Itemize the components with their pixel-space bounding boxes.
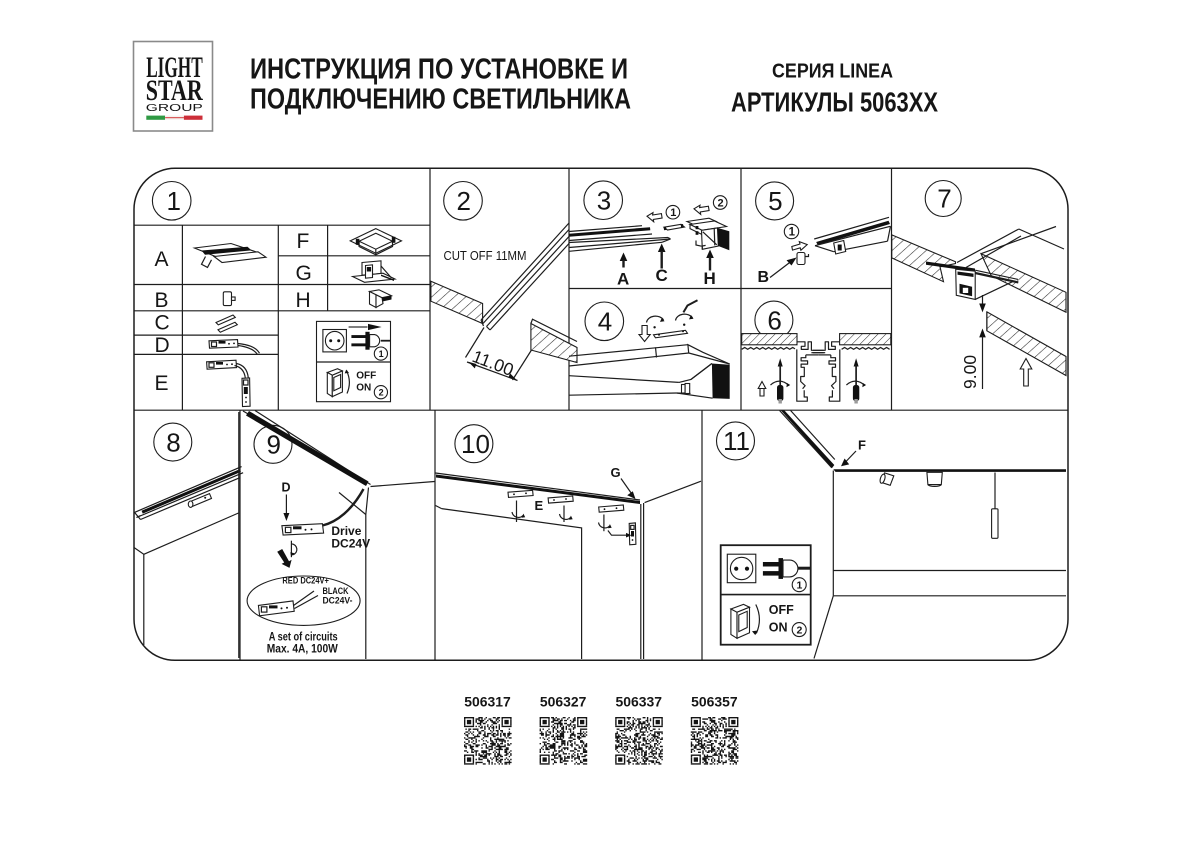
svg-text:DC24V-: DC24V- bbox=[323, 596, 353, 607]
svg-text:2: 2 bbox=[718, 197, 724, 209]
svg-text:ON: ON bbox=[356, 383, 371, 394]
svg-text:ON: ON bbox=[769, 621, 788, 635]
svg-text:E: E bbox=[535, 498, 544, 513]
svg-text:G: G bbox=[296, 262, 312, 285]
svg-text:3: 3 bbox=[597, 186, 611, 216]
svg-text:АРТИКУЛЫ 5063XX: АРТИКУЛЫ 5063XX bbox=[731, 87, 939, 118]
svg-text:Max. 4A, 100W: Max. 4A, 100W bbox=[267, 644, 338, 656]
svg-text:ИНСТРУКЦИЯ ПО УСТАНОВКЕ И: ИНСТРУКЦИЯ ПО УСТАНОВКЕ И bbox=[250, 54, 628, 86]
svg-text:ПОДКЛЮЧЕНИЮ СВЕТИЛЬНИКА: ПОДКЛЮЧЕНИЮ СВЕТИЛЬНИКА bbox=[250, 84, 631, 116]
svg-text:506357: 506357 bbox=[691, 694, 738, 710]
svg-text:1: 1 bbox=[789, 227, 796, 239]
svg-text:RED DC24V+: RED DC24V+ bbox=[282, 576, 329, 587]
svg-text:11: 11 bbox=[723, 426, 750, 456]
svg-text:H: H bbox=[704, 269, 716, 288]
svg-text:H: H bbox=[296, 289, 311, 312]
svg-text:2: 2 bbox=[457, 186, 471, 216]
svg-text:OFF: OFF bbox=[356, 370, 376, 381]
svg-text:СЕРИЯ LINEA: СЕРИЯ LINEA bbox=[772, 60, 893, 83]
svg-text:1: 1 bbox=[379, 349, 384, 359]
svg-text:GROUP: GROUP bbox=[146, 102, 203, 114]
svg-text:B: B bbox=[758, 269, 770, 286]
svg-text:OFF: OFF bbox=[769, 603, 794, 617]
svg-text:G: G bbox=[611, 465, 621, 480]
svg-text:10: 10 bbox=[461, 429, 490, 459]
svg-text:F: F bbox=[858, 438, 866, 453]
svg-text:D: D bbox=[282, 480, 291, 494]
svg-text:CUT OFF 11MM: CUT OFF 11MM bbox=[444, 248, 527, 263]
svg-text:506337: 506337 bbox=[616, 694, 663, 710]
svg-text:C: C bbox=[656, 266, 668, 285]
svg-text:1: 1 bbox=[670, 207, 676, 219]
svg-text:C: C bbox=[155, 312, 170, 335]
svg-text:506317: 506317 bbox=[464, 694, 511, 710]
svg-text:A set of circuits: A set of circuits bbox=[269, 632, 338, 644]
svg-text:6: 6 bbox=[767, 305, 781, 335]
svg-text:5: 5 bbox=[768, 186, 782, 216]
svg-text:DC24V: DC24V bbox=[331, 537, 370, 551]
svg-text:506327: 506327 bbox=[540, 694, 587, 710]
svg-text:B: B bbox=[155, 289, 169, 312]
svg-text:2: 2 bbox=[797, 624, 803, 636]
svg-text:E: E bbox=[155, 372, 169, 395]
svg-text:1: 1 bbox=[797, 579, 803, 591]
svg-text:2: 2 bbox=[379, 387, 384, 397]
svg-text:D: D bbox=[155, 334, 170, 357]
svg-text:A: A bbox=[617, 270, 629, 289]
svg-text:4: 4 bbox=[598, 307, 612, 337]
svg-text:8: 8 bbox=[166, 427, 180, 457]
svg-text:1: 1 bbox=[167, 186, 181, 216]
svg-text:F: F bbox=[297, 230, 310, 253]
svg-text:A: A bbox=[155, 248, 169, 271]
svg-text:9.00: 9.00 bbox=[960, 355, 980, 389]
svg-text:7: 7 bbox=[937, 184, 951, 214]
